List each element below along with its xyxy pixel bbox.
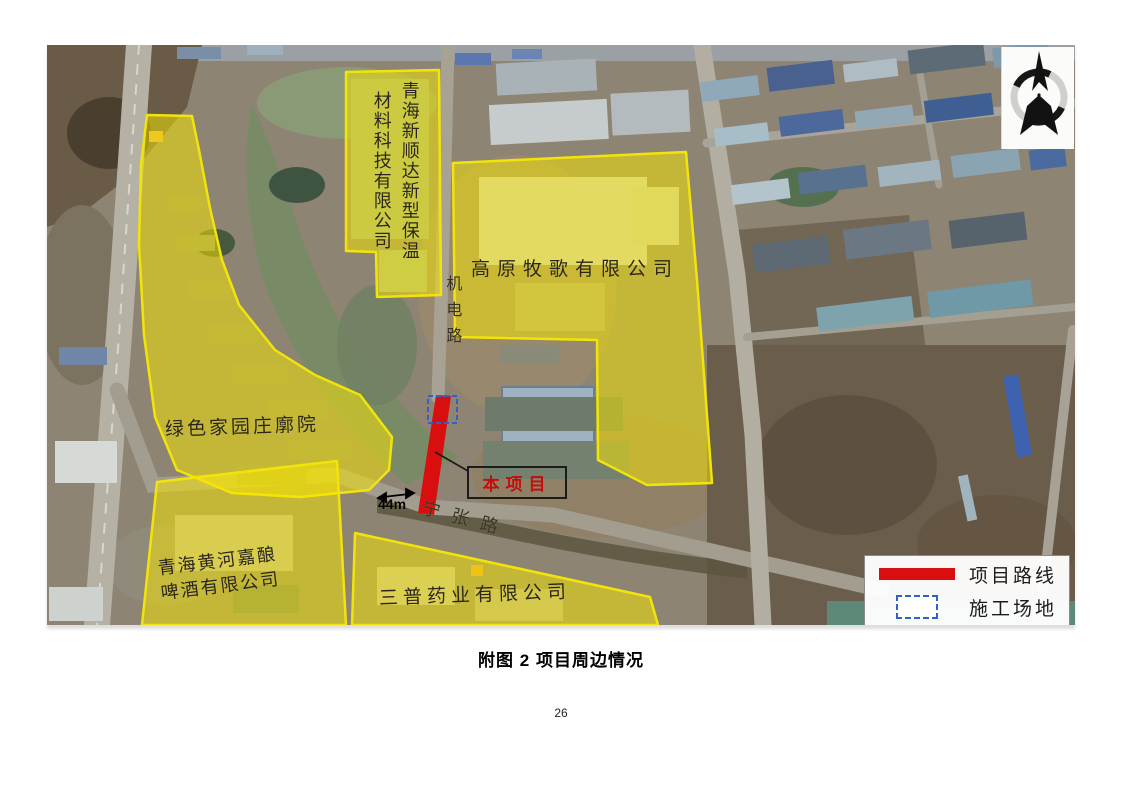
road-label-jidian: 机电路 <box>442 275 460 353</box>
satellite-imagery <box>47 45 1075 625</box>
route-line-symbol <box>879 568 955 580</box>
legend-item-site: 施工场地 <box>865 593 1069 621</box>
satellite-map-figure: 绿色家园庄廓院 青海新顺达新型保温 材料科技有限公司 高原牧歌有限公司 青海黄河… <box>47 45 1075 625</box>
north-compass-icon <box>1002 47 1074 149</box>
legend-item-route: 项目路线 <box>865 560 1069 588</box>
distance-label: 44m <box>378 496 406 512</box>
north-arrow-panel <box>1001 47 1074 149</box>
map-legend: 项目路线 施工场地 <box>864 555 1070 625</box>
figure-caption: 附图 2 项目周边情况 <box>0 646 1122 671</box>
area-label-xinshunda-col2: 材料科技有限公司 <box>371 91 392 251</box>
area-label-gaoyuan-muge: 高原牧歌有限公司 <box>471 259 679 281</box>
project-callout-label: 本项目 <box>483 470 552 495</box>
area-label-xinshunda-col1: 青海新顺达新型保温 <box>399 81 420 261</box>
construction-site-symbol <box>896 595 938 619</box>
legend-site-label: 施工场地 <box>969 594 1057 621</box>
project-callout-box: 本项目 <box>467 466 567 499</box>
legend-route-label: 项目路线 <box>969 561 1057 588</box>
page-number: 26 <box>0 706 1122 720</box>
